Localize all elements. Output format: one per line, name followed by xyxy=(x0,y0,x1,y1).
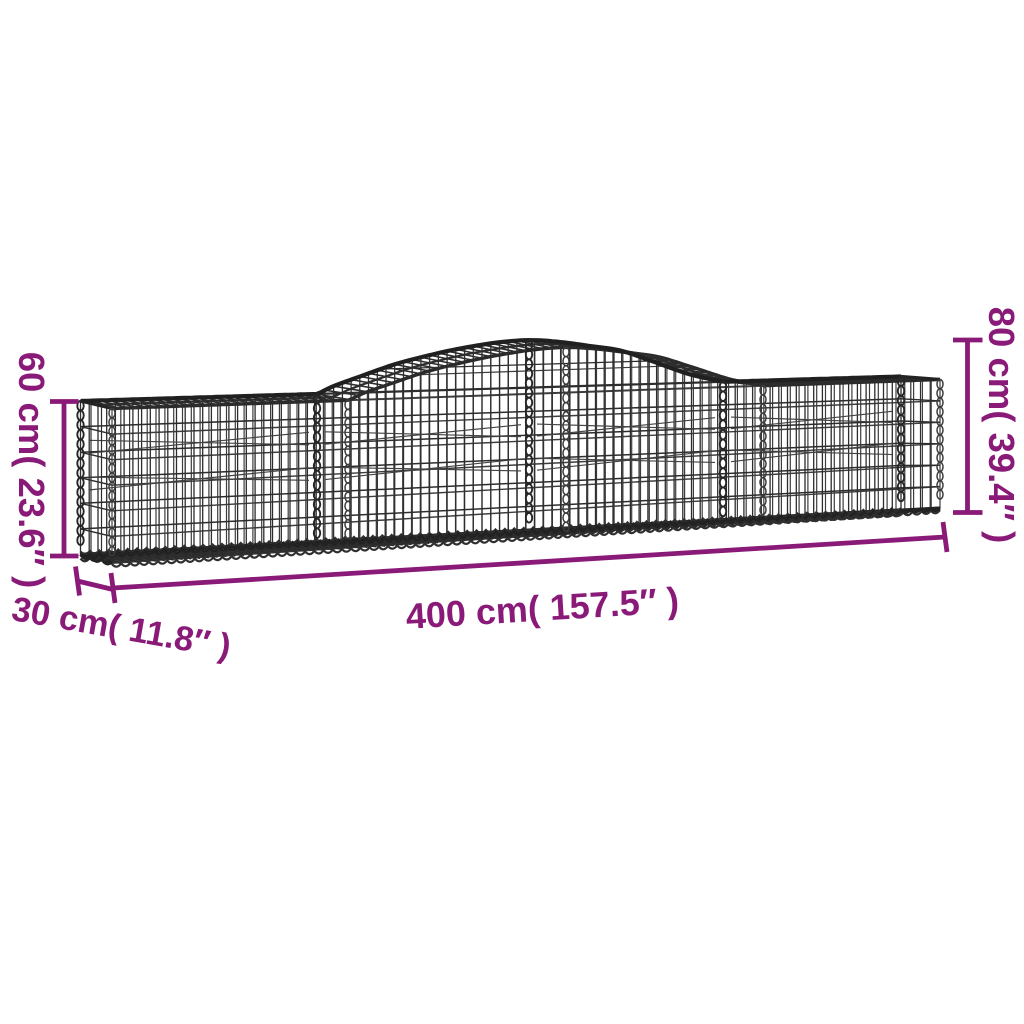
svg-text:60 cm( 23.6″ ): 60 cm( 23.6″ ) xyxy=(11,352,52,589)
svg-text:80 cm( 39.4″ ): 80 cm( 39.4″ ) xyxy=(981,307,1022,544)
svg-text:30 cm( 11.8″ ): 30 cm( 11.8″ ) xyxy=(9,590,234,666)
svg-text:400 cm( 157.5″ ): 400 cm( 157.5″ ) xyxy=(405,579,680,637)
